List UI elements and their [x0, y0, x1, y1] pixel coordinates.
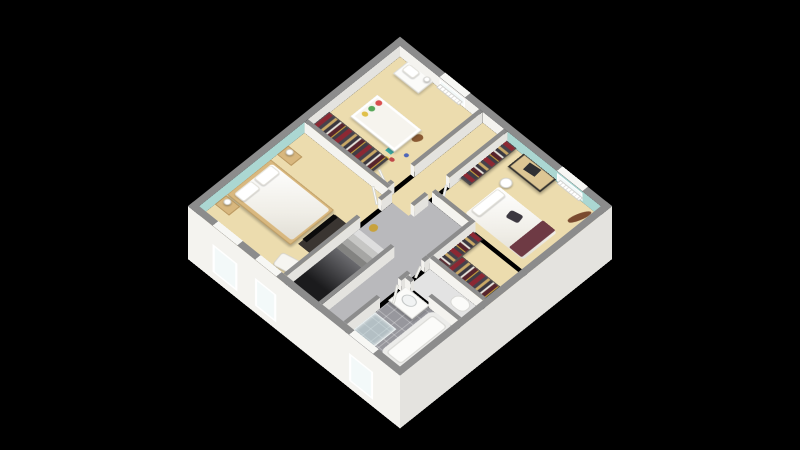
bathroom-window-panel [349, 353, 373, 400]
floorplan-canvas [0, 0, 800, 450]
floorplan-3d-render [188, 48, 612, 387]
master-window-2-panel [255, 278, 276, 323]
master-window-1-panel [213, 244, 238, 291]
